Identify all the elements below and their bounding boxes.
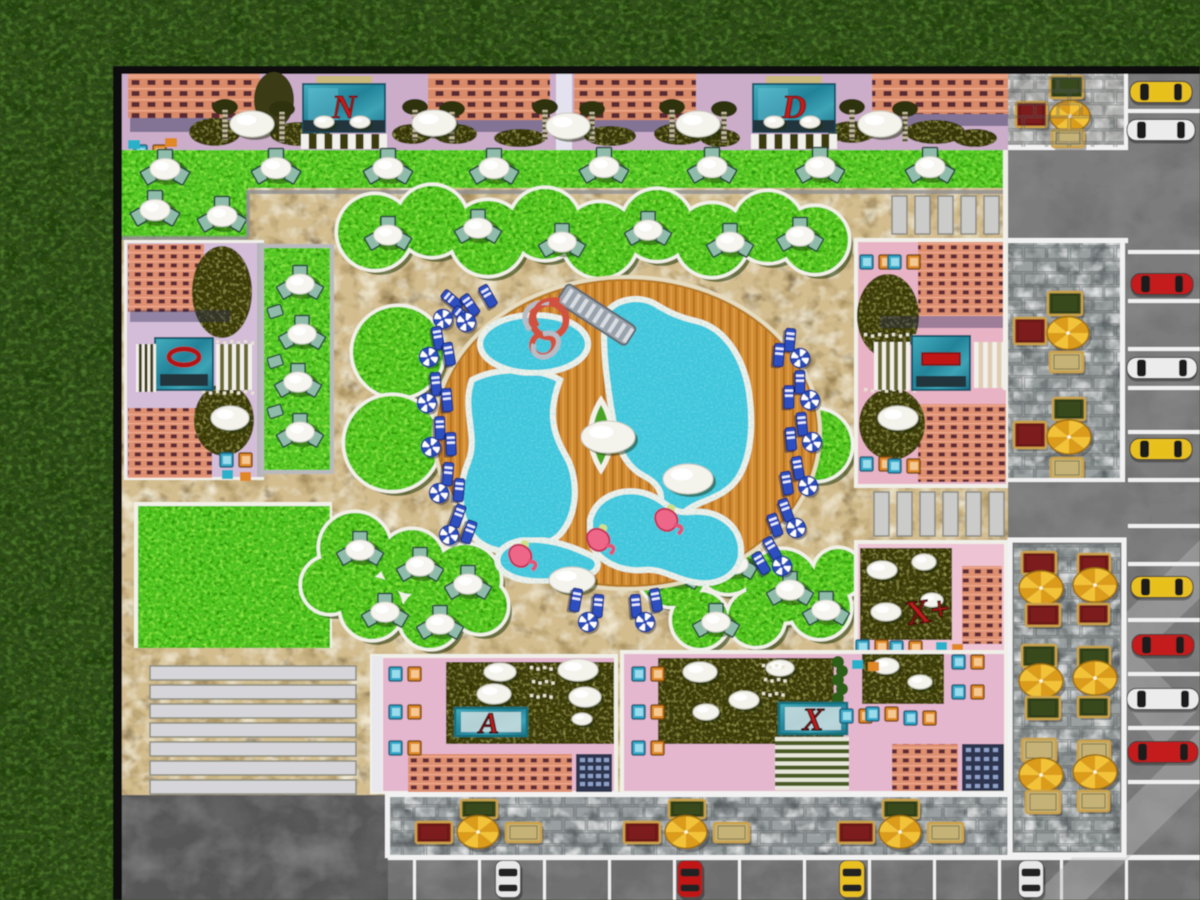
svg-text:X: X: [801, 701, 824, 737]
svg-text:X+: X+: [904, 590, 953, 633]
svg-text:A: A: [477, 707, 499, 740]
